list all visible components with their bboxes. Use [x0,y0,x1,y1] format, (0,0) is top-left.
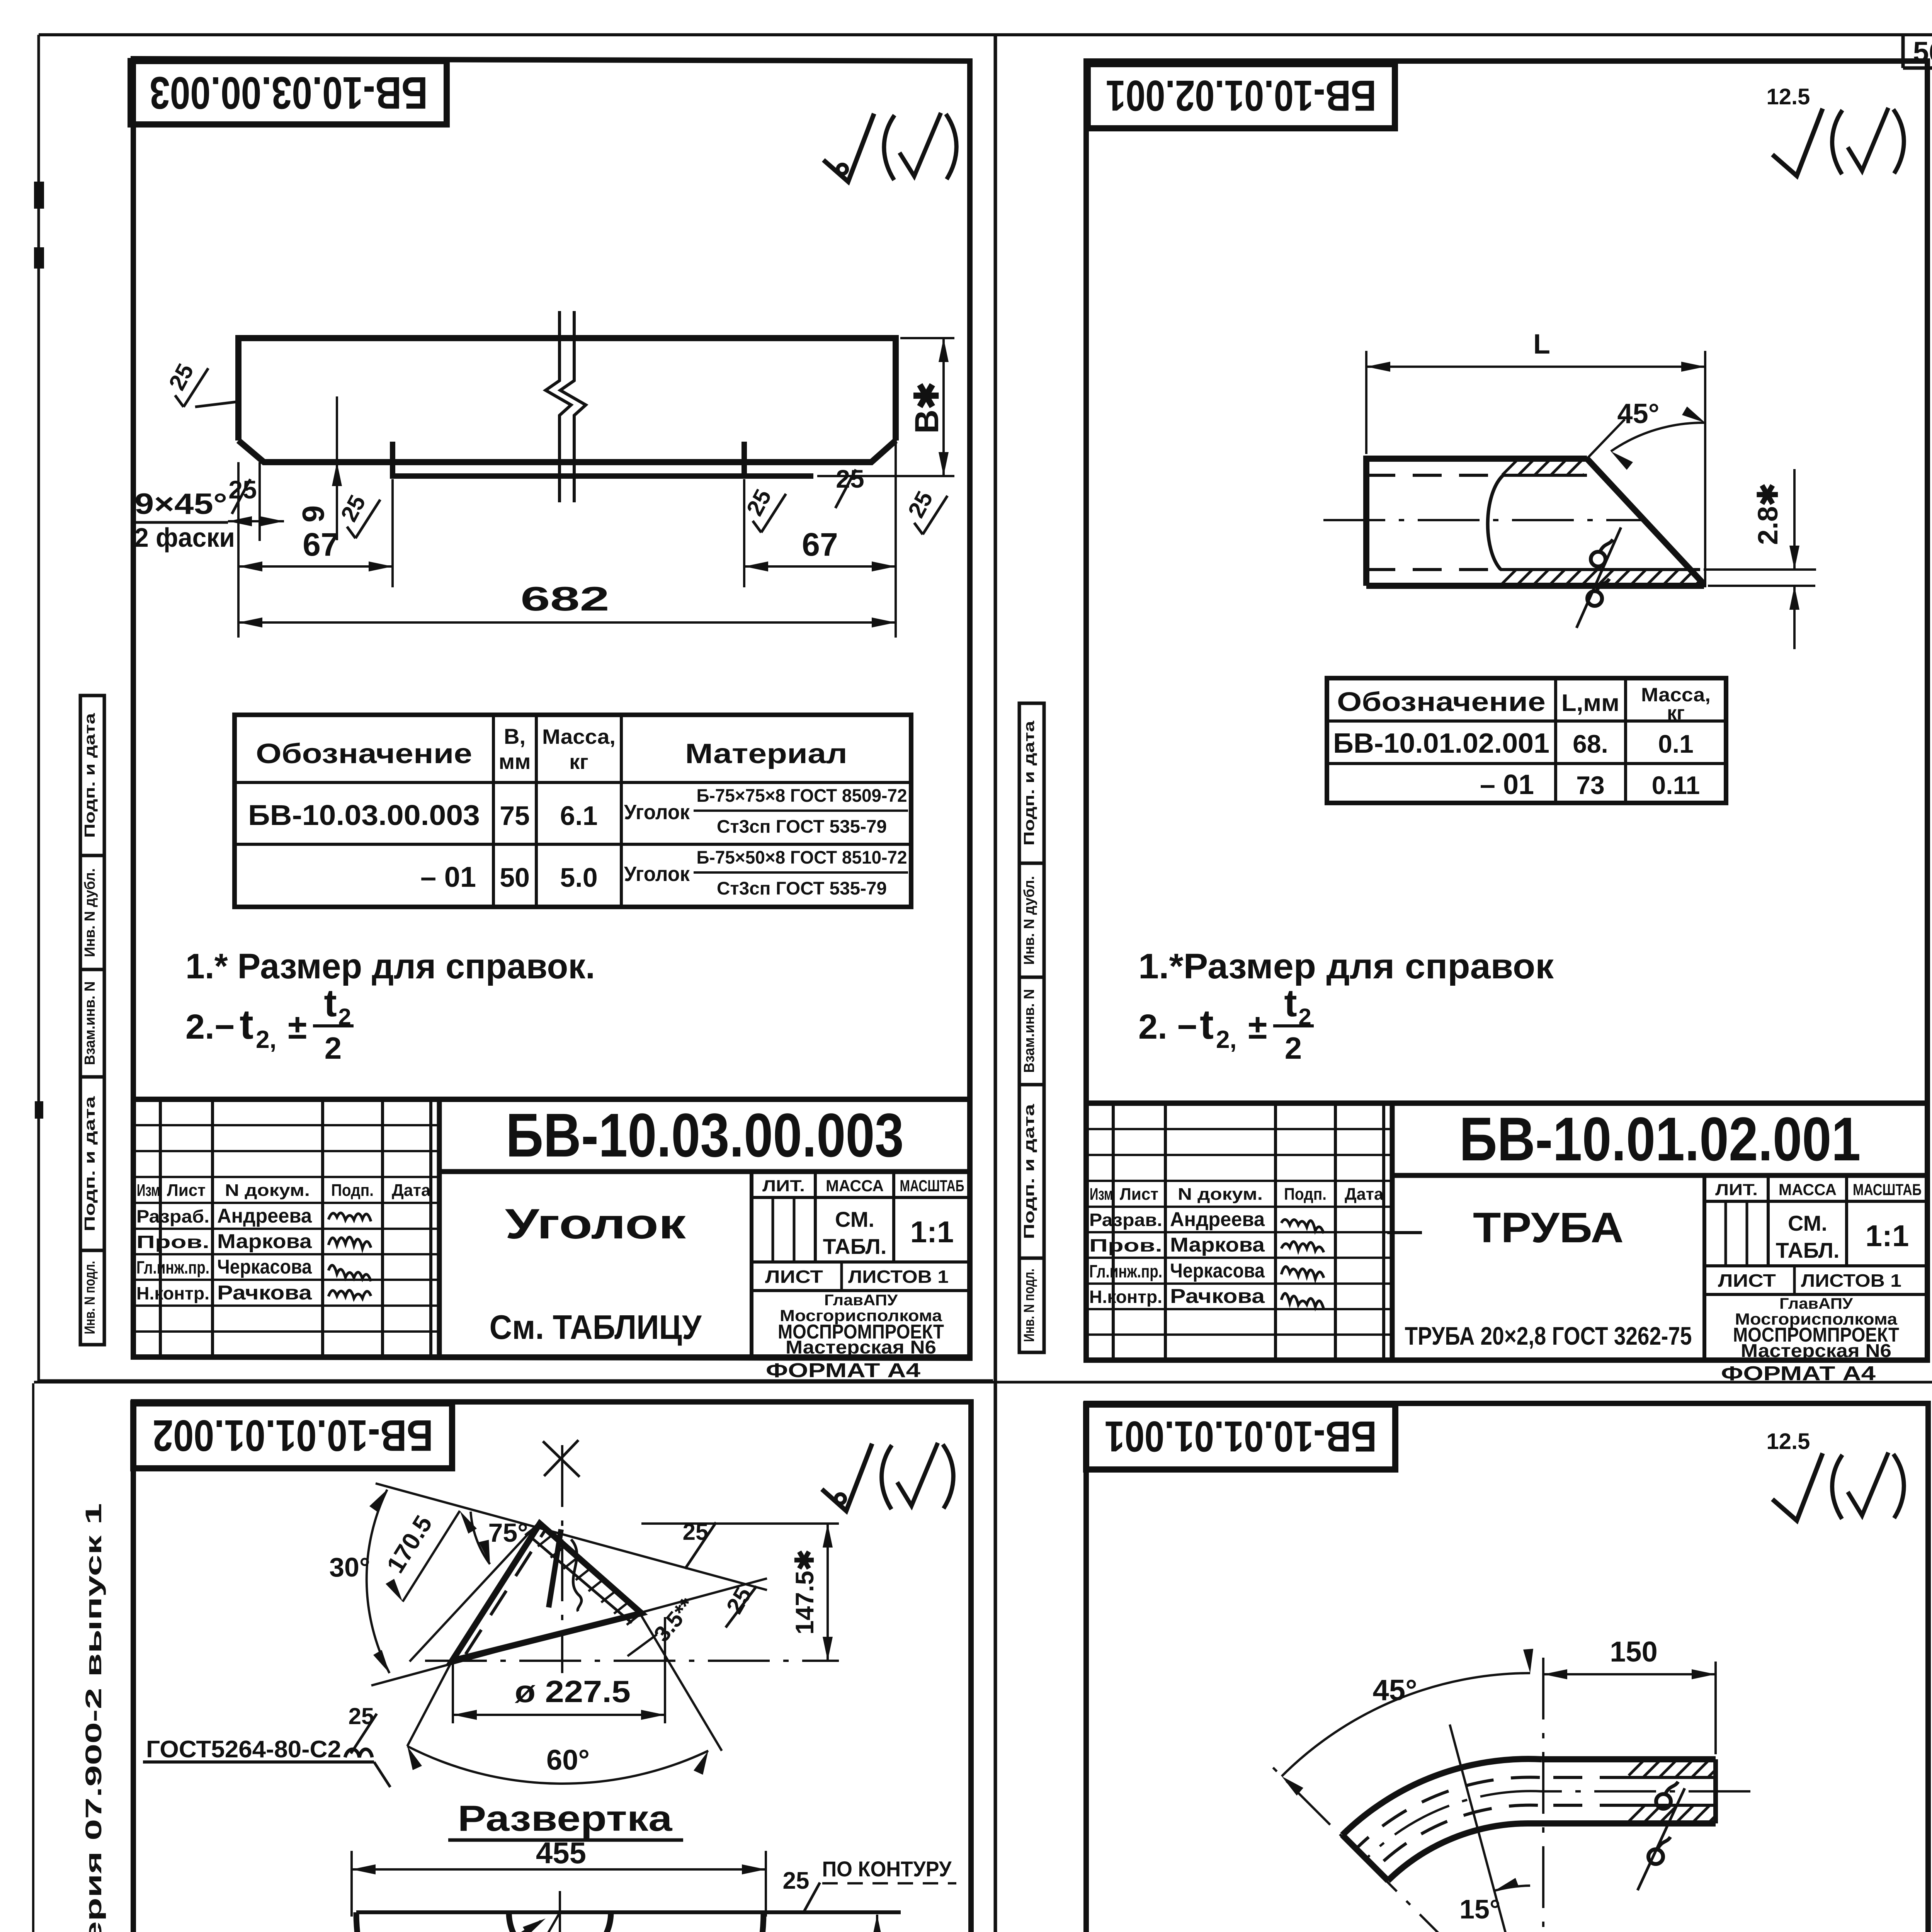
svg-text:Б-75×75×8 ГОСТ 8509-72: Б-75×75×8 ГОСТ 8509-72 [697,785,907,806]
svg-text:N докум.: N докум. [1178,1185,1263,1204]
svg-text:Маркова: Маркова [217,1230,312,1253]
svg-text:– 01: – 01 [420,861,476,893]
svg-text:ГОСТ5264-80-С2: ГОСТ5264-80-С2 [146,1736,341,1763]
svg-text:30°: 30° [329,1552,370,1582]
svg-text:Уголок: Уголок [505,1200,686,1248]
svg-text:БВ-10.03.00.003: БВ-10.03.00.003 [150,67,428,118]
svg-text:БВ-10.01.02.001: БВ-10.01.02.001 [1333,728,1549,759]
svg-text:Обозначение: Обозначение [1337,687,1546,717]
svg-text:Разрав.: Разрав. [1089,1210,1162,1230]
svg-text:ЛИСТОВ 1: ЛИСТОВ 1 [848,1267,949,1287]
svg-text:Н.контр.: Н.контр. [1089,1287,1162,1307]
svg-text:БВ-10.03.00.003: БВ-10.03.00.003 [506,1100,904,1170]
svg-text:Инв. N подл.: Инв. N подл. [1021,1269,1037,1342]
svg-text:Мастерская N6: Мастерская N6 [1741,1341,1891,1361]
svg-text:455: 455 [536,1836,586,1870]
svg-text:60°: 60° [546,1744,590,1776]
svg-text:Инв. N подл.: Инв. N подл. [82,1261,98,1334]
svg-text:2 фаски: 2 фаски [134,522,235,553]
svg-text:Взам.инв. N: Взам.инв. N [1021,989,1037,1073]
svg-text:±: ± [1248,1008,1267,1046]
svg-text:Развертка: Развертка [458,1798,673,1838]
svg-text:Б-75×50×8 ГОСТ 8510-72: Б-75×50×8 ГОСТ 8510-72 [697,847,907,867]
svg-text:Мастерская N6: Мастерская N6 [786,1337,936,1358]
svg-text:Взам.инв. N: Взам.инв. N [82,981,98,1065]
svg-text:2. −: 2. − [1138,1008,1197,1046]
svg-text:БВ-10.01.01.001: БВ-10.01.01.001 [1105,1412,1377,1461]
svg-text:Обозначение: Обозначение [256,738,472,769]
svg-text:67: 67 [802,526,838,563]
svg-text:Черкасова: Черкасова [217,1256,312,1278]
svg-text:– 01: – 01 [1480,769,1534,800]
svg-text:Маркова: Маркова [1170,1234,1265,1256]
svg-text:БВ-10.01.02.001: БВ-10.01.02.001 [1459,1104,1861,1173]
svg-text:2,: 2, [256,1026,276,1053]
svg-text:Подп.: Подп. [1284,1185,1327,1204]
svg-text:Материал: Материал [685,738,847,769]
svg-text:ЛИСТ: ЛИСТ [765,1267,823,1287]
svg-text:t: t [1284,981,1297,1025]
svg-text:15°: 15° [1459,1894,1500,1924]
svg-text:Лист: Лист [1120,1185,1158,1204]
svg-text:МАСШТАБ: МАСШТАБ [1853,1180,1922,1199]
svg-text:Пров.: Пров. [136,1232,209,1252]
svg-text:2.−: 2.− [185,1008,235,1046]
svg-text:25: 25 [228,475,257,504]
svg-text:БВ-10.03.00.003: БВ-10.03.00.003 [248,799,480,831]
svg-text:Подп.: Подп. [331,1181,374,1200]
svg-text:Ст3сп ГОСТ 535-79: Ст3сп ГОСТ 535-79 [717,878,887,898]
svg-text:БВ-10.01.01.002: БВ-10.01.01.002 [153,1411,433,1460]
svg-text:МАССА: МАССА [1779,1180,1837,1199]
svg-text:кг: кг [569,750,588,774]
svg-text:1:1: 1:1 [1866,1219,1909,1253]
svg-text:Дата: Дата [1345,1185,1384,1204]
svg-text:Ст3сп ГОСТ 535-79: Ст3сп ГОСТ 535-79 [717,816,887,837]
svg-text:50: 50 [500,862,530,893]
svg-text:L: L [1533,329,1550,360]
svg-text:Подп. и дата: Подп. и дата [82,713,98,838]
svg-text:Изм: Изм [1090,1185,1113,1204]
svg-text:Подп. и дата: Подп. и дата [82,1096,98,1231]
svg-text:75: 75 [500,801,530,831]
svg-text:6.1: 6.1 [560,801,597,831]
svg-text:Рачкова: Рачкова [1170,1285,1265,1308]
svg-text:12.5: 12.5 [1767,84,1810,109]
svg-text:Рачкова: Рачкова [217,1282,312,1304]
svg-text:Подп. и дата: Подп. и дата [1021,720,1037,845]
svg-text:ЛИТ.: ЛИТ. [1715,1180,1758,1199]
svg-text:ЛИСТ: ЛИСТ [1718,1270,1776,1291]
svg-text:мм: мм [499,749,531,774]
svg-text:5.0: 5.0 [560,862,597,893]
svg-text:12.5: 12.5 [1767,1429,1810,1454]
svg-text:Лист: Лист [167,1181,206,1200]
svg-text:БВ-10.01.02.001: БВ-10.01.02.001 [1106,71,1376,120]
svg-text:Подп. и дата: Подп. и дата [1021,1104,1037,1239]
svg-text:ø 227.5: ø 227.5 [515,1674,631,1709]
svg-text:1:1: 1:1 [910,1215,954,1249]
svg-text:Гл.инж.пр.: Гл.инж.пр. [136,1257,209,1277]
svg-text:ФОРМАТ А4: ФОРМАТ А4 [1721,1362,1876,1385]
svg-text:Черкасова: Черкасова [1170,1260,1265,1282]
svg-text:См. ТАБЛИЦУ: См. ТАБЛИЦУ [490,1308,702,1346]
svg-text:ЛИСТОВ 1: ЛИСТОВ 1 [1801,1270,1901,1291]
svg-text:Андреева: Андреева [217,1205,312,1227]
svg-text:67: 67 [303,526,338,563]
svg-text:N докум.: N докум. [225,1181,310,1200]
svg-text:2: 2 [1285,1031,1302,1065]
svg-text:СМ.: СМ. [835,1207,874,1231]
svg-text:Н.контр.: Н.контр. [136,1283,209,1303]
svg-text:75°: 75° [488,1518,528,1548]
svg-text:±: ± [288,1008,307,1046]
svg-text:150: 150 [1610,1636,1657,1668]
svg-text:9: 9 [296,505,330,523]
svg-text:147.5✱: 147.5✱ [790,1549,819,1634]
svg-text:Пров.: Пров. [1089,1235,1162,1255]
svg-text:t: t [324,981,337,1025]
svg-text:Разраб.: Разраб. [136,1206,209,1226]
svg-text:0.11: 0.11 [1652,771,1700,799]
svg-text:ПО КОНТУРУ: ПО КОНТУРУ [822,1857,952,1881]
svg-text:t: t [1200,1001,1214,1048]
svg-text:682: 682 [520,580,609,618]
svg-text:МАСШТАБ: МАСШТАБ [900,1177,964,1195]
svg-text:25: 25 [783,1867,810,1894]
svg-text:0.1: 0.1 [1658,730,1694,758]
svg-text:кг: кг [1667,702,1685,724]
svg-text:t: t [240,1001,253,1048]
svg-text:1.* Размер для справок.: 1.* Размер для справок. [185,947,595,986]
svg-text:9×45°: 9×45° [134,488,227,520]
svg-text:Изм: Изм [137,1181,160,1200]
svg-text:ТАБЛ.: ТАБЛ. [823,1234,887,1259]
svg-text:ТРУБА: ТРУБА [1473,1204,1624,1252]
svg-text:ФОРМАТ А4: ФОРМАТ А4 [766,1359,920,1382]
svg-text:L,мм: L,мм [1561,690,1619,716]
svg-text:ТАБЛ.: ТАБЛ. [1776,1238,1840,1262]
svg-text:ТРУБА 20×2,8 ГОСТ 3262-75: ТРУБА 20×2,8 ГОСТ 3262-75 [1405,1321,1692,1350]
svg-text:МАССА: МАССА [826,1177,884,1195]
svg-text:В,: В, [504,724,526,748]
svg-text:2.8✱: 2.8✱ [1753,483,1784,545]
svg-text:Инв. N дубл.: Инв. N дубл. [1021,876,1037,965]
svg-text:1.*Размер для справок: 1.*Размер для справок [1138,947,1554,986]
svg-text:73: 73 [1576,771,1604,799]
svg-text:ЛИТ.: ЛИТ. [762,1177,805,1195]
svg-text:Уголок: Уголок [624,862,690,886]
svg-text:Серия 07.900-2 выпуск 1: Серия 07.900-2 выпуск 1 [81,1503,106,1932]
svg-text:Масса,: Масса, [542,725,616,748]
svg-text:Гл.инж.пр.: Гл.инж.пр. [1089,1261,1162,1281]
svg-text:45°: 45° [1617,398,1660,429]
svg-text:Андреева: Андреева [1170,1208,1265,1231]
svg-text:45°: 45° [1373,1674,1417,1707]
svg-text:Уголок: Уголок [624,801,690,824]
svg-text:Дата: Дата [392,1181,431,1200]
svg-text:2: 2 [325,1031,342,1065]
svg-text:68.: 68. [1573,730,1608,758]
svg-text:СМ.: СМ. [1788,1211,1827,1235]
svg-text:2,: 2, [1216,1026,1236,1053]
svg-text:Инв. N дубл.: Инв. N дубл. [82,868,98,957]
svg-text:В✱: В✱ [908,382,946,434]
